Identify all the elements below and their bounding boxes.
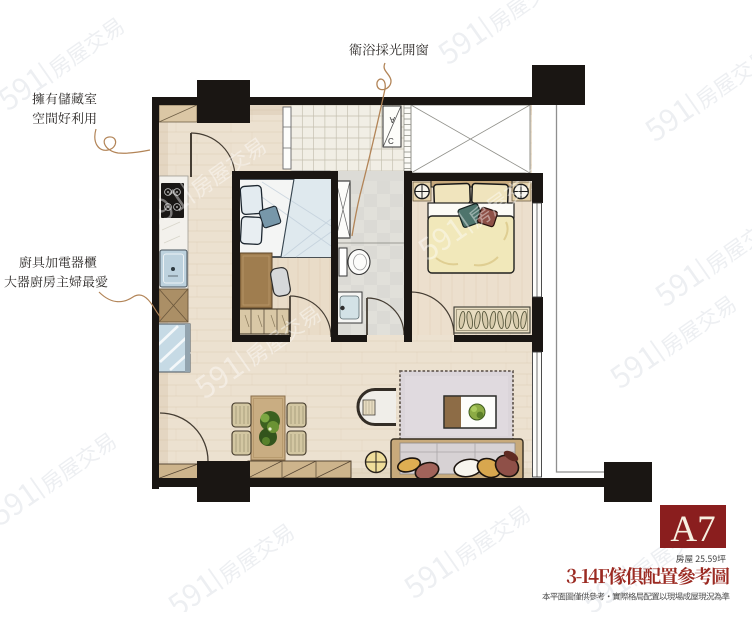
svg-text:C: C bbox=[388, 137, 394, 146]
svg-text:A: A bbox=[389, 115, 395, 124]
svg-text:A7: A7 bbox=[670, 509, 715, 550]
